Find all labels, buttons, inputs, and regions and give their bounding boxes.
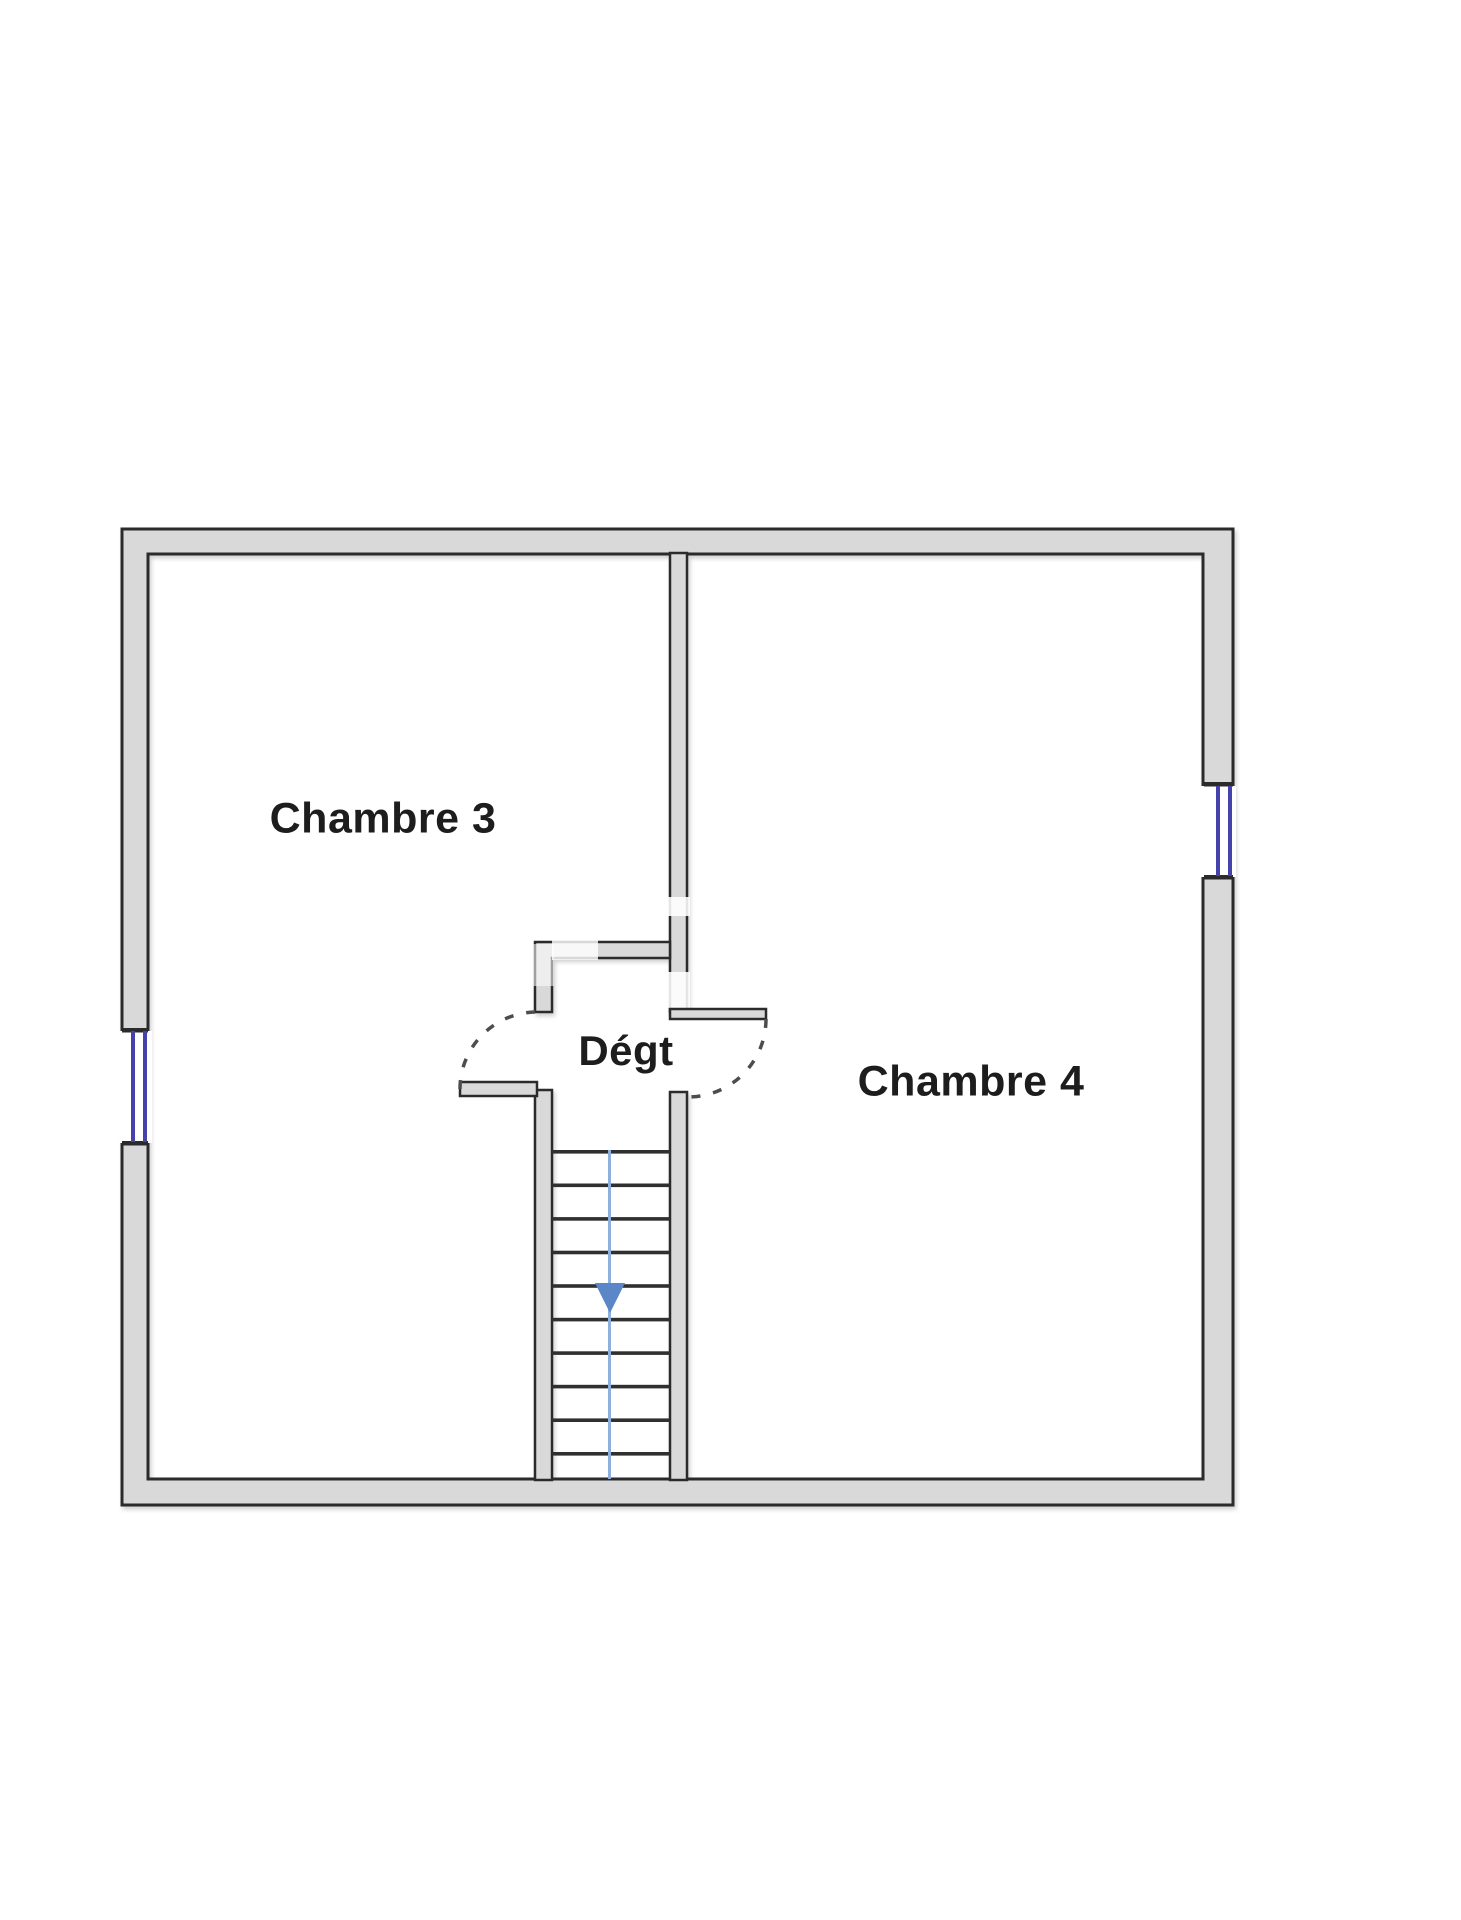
window-right-frame-line: [1228, 786, 1232, 876]
watermark-patch: [533, 944, 554, 986]
window-right-cap-top: [1204, 782, 1233, 787]
staircase: [552, 1150, 670, 1479]
window-right-frame-line: [1216, 786, 1220, 876]
stairwell-left-wall: [535, 1090, 552, 1480]
door-leaf-chambre3: [460, 1082, 537, 1096]
divider-wall-lower: [670, 1092, 687, 1480]
window-right: [1200, 782, 1236, 880]
door-leaf-chambre4: [670, 1009, 766, 1019]
door-swing-arc-chambre4: [688, 1019, 766, 1097]
divider-wall-upper: [670, 553, 687, 1012]
window-left-frame-line: [143, 1031, 147, 1142]
room-label-chambre-4: Chambre 4: [858, 1058, 1085, 1107]
room-label-chambre-3: Chambre 3: [270, 795, 497, 844]
floor-plan-drawing: [0, 0, 1461, 1920]
watermark-patch: [552, 940, 598, 960]
room-label-degagement: Dégt: [578, 1027, 673, 1075]
watermark-patch: [664, 897, 690, 916]
floor-plan-page: Chambre 3 Chambre 4 Dégt: [0, 0, 1461, 1920]
window-left-frame-line: [131, 1031, 135, 1142]
stair-direction-arrow-icon: [595, 1283, 625, 1313]
window-left-gap: [119, 1031, 152, 1143]
window-left: [119, 1028, 152, 1146]
stair-guide-line: [608, 1150, 611, 1479]
watermark-patch: [664, 972, 690, 1008]
door-swing-arc-chambre3: [460, 1012, 537, 1089]
